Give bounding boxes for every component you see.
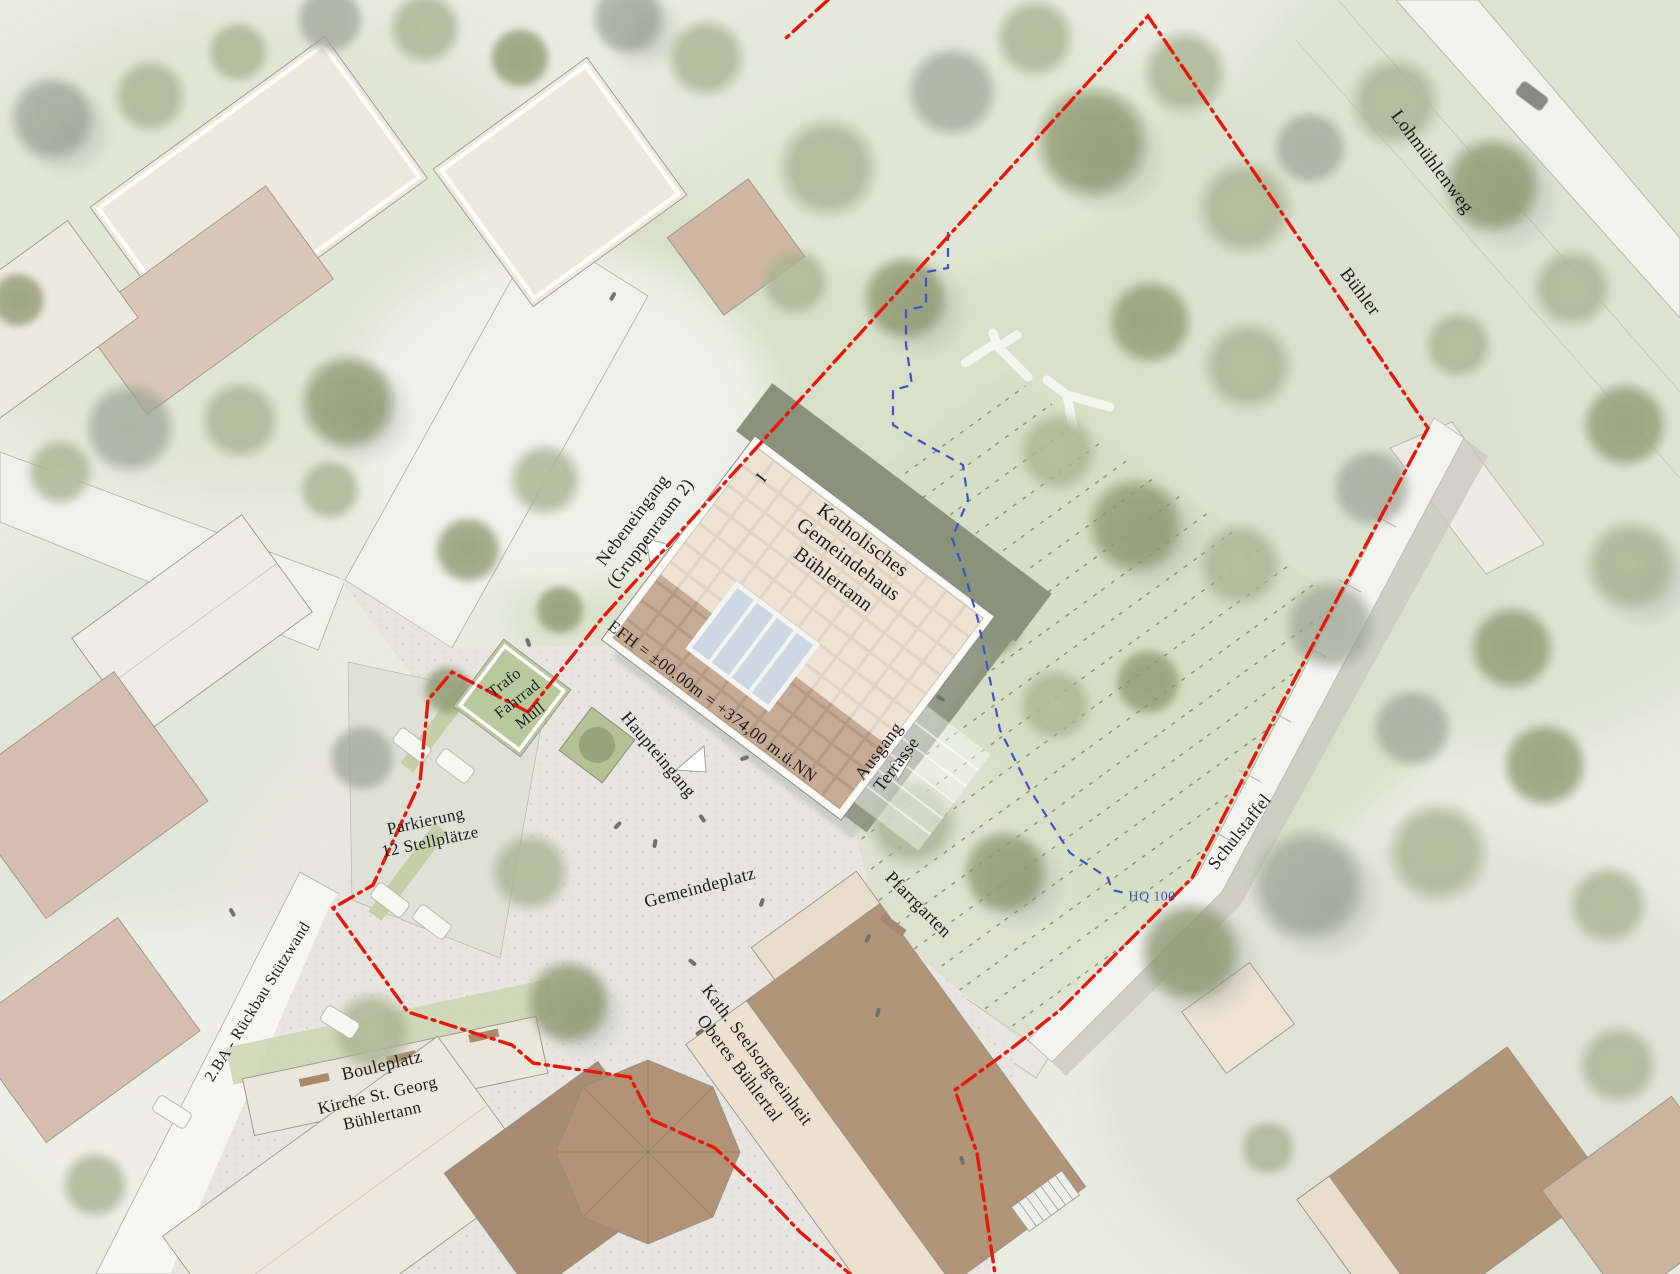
site-plan: Lohmühlenweg Bühler Katholisches Gemeind… [0, 0, 1680, 1274]
site-plan-canvas [0, 0, 1680, 1274]
flood-label-hq100: HQ 100 [1128, 888, 1175, 905]
